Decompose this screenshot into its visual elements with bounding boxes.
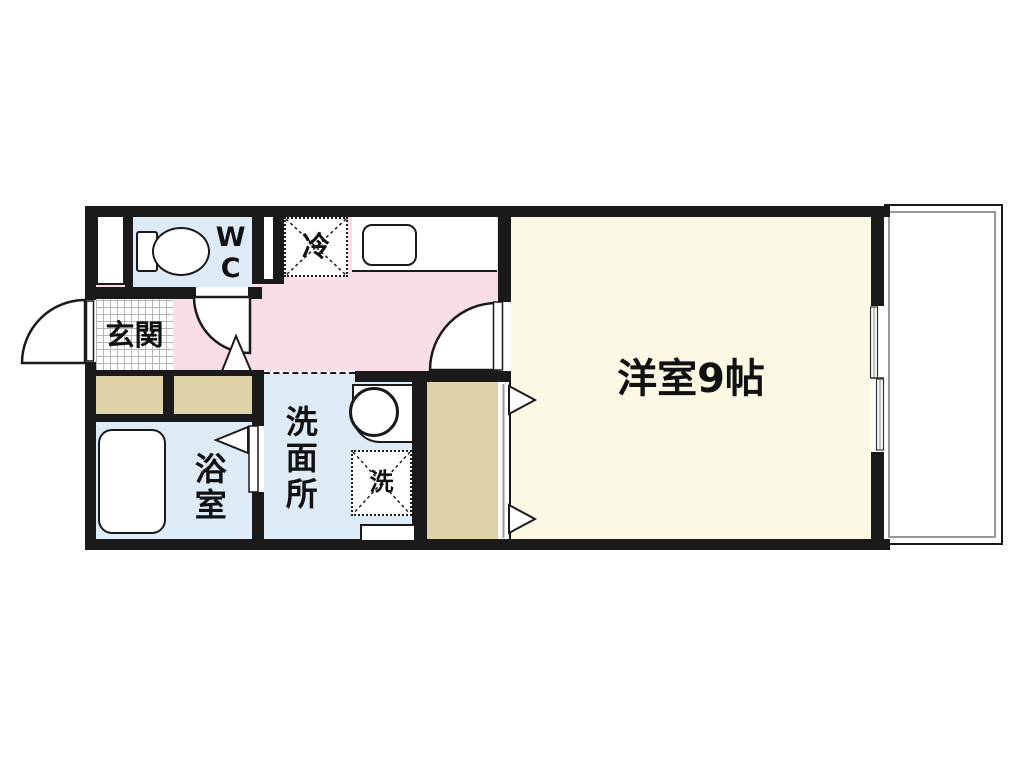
washer-label: 洗	[351, 469, 412, 497]
toilet-bowl-icon	[152, 227, 210, 276]
bathroom-label: 浴室	[188, 440, 228, 536]
storage-box-right	[174, 374, 252, 418]
entrance-label: 玄関	[96, 318, 173, 352]
bathroom-door-opening	[252, 426, 264, 492]
wall-top	[85, 206, 890, 217]
wall-right-lower	[871, 452, 884, 550]
wall-bottom	[85, 539, 890, 550]
front-door-swing-arc	[22, 300, 85, 363]
washroom-bottom-inset	[360, 524, 416, 542]
balcony-inner-line	[888, 211, 996, 538]
floor-plan: 玄関 WC 冷 浴室 洗面所 洗 洋室9帖	[0, 0, 1024, 768]
wall-closet-east-line	[509, 382, 511, 539]
washroom-label: 洗面所	[278, 388, 320, 530]
wall-washroom-top	[355, 371, 511, 382]
wall-washroom-closet	[412, 373, 427, 541]
washroom-open-boundary	[264, 372, 355, 374]
closet-floor	[427, 382, 498, 539]
western-room-label: 洋室9帖	[551, 354, 831, 404]
wall-left-upper	[85, 206, 96, 300]
wc-label: WC	[211, 218, 249, 288]
wall-slot-inset	[263, 216, 274, 280]
wall-right-upper	[871, 206, 884, 306]
balcony	[884, 204, 1003, 545]
wall-storage-bath	[96, 414, 264, 422]
wall-wc-bottom-left	[96, 287, 196, 299]
washbasin-icon	[349, 387, 399, 437]
closet-sliding-track	[498, 382, 508, 539]
refrigerator-label: 冷	[284, 231, 348, 263]
storage-box-left	[96, 374, 163, 414]
front-door-opening	[85, 300, 96, 362]
wall-left-lower	[85, 362, 96, 550]
western-room-door-opening	[498, 302, 511, 371]
window-opening	[871, 306, 884, 452]
wc-door-opening	[196, 287, 248, 299]
kitchen-sink-icon	[362, 224, 417, 266]
wall-western-room-west	[498, 206, 511, 302]
bathtub-icon	[98, 429, 166, 534]
pipe-space-box	[96, 214, 125, 285]
wall-storage-divider	[163, 374, 174, 418]
wall-entry-storage	[96, 370, 264, 376]
wall-wc-bottom-hinge	[248, 287, 262, 299]
wall-ps-wc-divider	[125, 206, 133, 299]
